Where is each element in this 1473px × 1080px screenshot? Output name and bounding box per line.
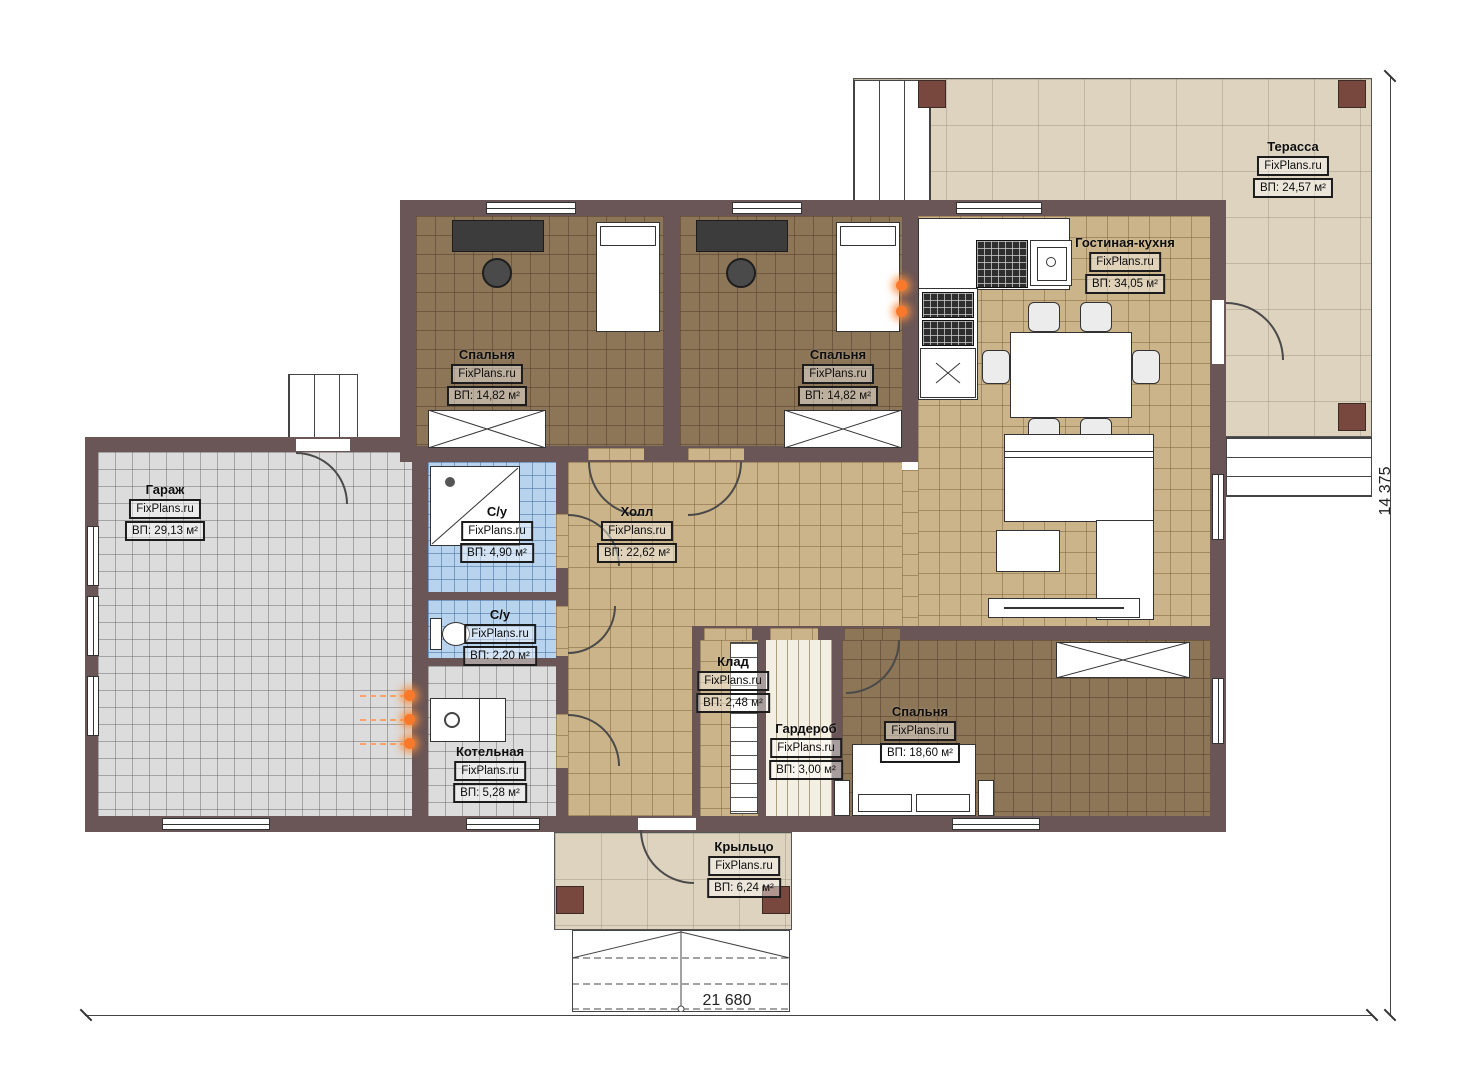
dining-chair [1028, 302, 1060, 332]
area-label: ВП: 22,62 м² [597, 543, 677, 563]
bedroom-2-door-opening [688, 448, 744, 460]
room-name: Спальня [892, 705, 948, 719]
utility-connection-icon [404, 714, 415, 725]
wall-bathroom-divider [424, 592, 556, 600]
brand-label: FixPlans.ru [697, 671, 769, 691]
terrace-side-steps [1226, 437, 1372, 497]
room-label-living-kitchen: Гостиная-кухня FixPlans.ru ВП: 34,05 м² [1075, 236, 1175, 294]
brand-label: FixPlans.ru [884, 721, 956, 741]
boiler-unit [430, 698, 506, 742]
room-name: С/у [490, 608, 510, 622]
porch-column [556, 886, 584, 914]
area-label: ВП: 14,82 м² [447, 386, 527, 406]
dimension-line-bottom [85, 1015, 1372, 1016]
room-label-bedroom-3: Спальня FixPlans.ru ВП: 18,60 м² [880, 705, 960, 763]
pillow [600, 226, 656, 246]
room-name: Клад [717, 655, 749, 669]
brand-label: FixPlans.ru [129, 499, 201, 519]
brand-label: FixPlans.ru [1257, 156, 1329, 176]
utility-connection-icon [896, 280, 907, 291]
brand-label: FixPlans.ru [708, 856, 780, 876]
porch-steps [572, 930, 790, 1012]
terrace-column [1338, 80, 1366, 108]
room-label-bathroom-2: С/у FixPlans.ru ВП: 2,20 м² [463, 608, 537, 666]
area-label: ВП: 3,00 м² [769, 760, 843, 780]
room-name: Гараж [146, 483, 185, 497]
sink-icon [1030, 240, 1072, 286]
wardrobe-door-opening [770, 628, 818, 640]
dining-table [1010, 332, 1132, 418]
garage-window-3 [87, 676, 99, 736]
room-name: Гостиная-кухня [1075, 236, 1175, 250]
room-label-garage: Гараж FixPlans.ru ВП: 29,13 м² [125, 483, 205, 541]
garage-wall-top [85, 437, 415, 452]
area-label: ВП: 34,05 м² [1085, 274, 1165, 294]
dimension-line-right [1390, 76, 1391, 1015]
wall-under-bedrooms [400, 446, 918, 462]
dining-chair [1132, 350, 1160, 384]
washer-crossed-cabinet [920, 348, 976, 398]
utility-line [360, 719, 406, 721]
wall-garage-services [412, 452, 428, 832]
porch-door-opening [638, 818, 696, 830]
area-label: ВП: 29,13 м² [125, 521, 205, 541]
bedroom-2-window [732, 202, 802, 214]
bedroom-1-window [486, 202, 576, 214]
room-label-bedroom-2: Спальня FixPlans.ru ВП: 14,82 м² [798, 348, 878, 406]
wall-bedroom-divider [664, 200, 680, 462]
garage-window-2 [87, 596, 99, 656]
bathroom-2-door-opening [556, 606, 568, 656]
stove-icon [976, 240, 1028, 288]
storage-door-opening [704, 628, 752, 640]
area-label: ВП: 2,20 м² [463, 646, 537, 666]
floor-plan-canvas: Терасса FixPlans.ru ВП: 24,57 м² Гостина… [0, 0, 1473, 1080]
brand-label: FixPlans.ru [601, 521, 673, 541]
bedroom-1-door-opening [588, 448, 644, 460]
terrace-door-opening [1212, 300, 1224, 364]
room-label-boiler: Котельная FixPlans.ru ВП: 5,28 м² [453, 745, 527, 803]
room-label-porch: Крыльцо FixPlans.ru ВП: 6,24 м² [707, 840, 781, 898]
bathroom-1-door-opening [556, 514, 568, 568]
room-label-hall: Холл FixPlans.ru ВП: 22,62 м² [597, 505, 677, 563]
boiler-door-opening [556, 714, 568, 768]
area-label: ВП: 4,90 м² [460, 543, 534, 563]
room-label-terrace: Терасса FixPlans.ru ВП: 24,57 м² [1253, 140, 1333, 198]
bedroom-3-window [952, 818, 1040, 830]
oven-icon [922, 292, 974, 318]
room-name: Котельная [456, 745, 524, 759]
room-name: Холл [621, 505, 654, 519]
area-label: ВП: 5,28 м² [453, 783, 527, 803]
room-name: Гардероб [775, 722, 836, 736]
brand-label: FixPlans.ru [454, 761, 526, 781]
dimension-height-label: 14 375 [1377, 451, 1395, 531]
desk [696, 220, 788, 252]
floor-plan-page: { "brand": "FixPlans.ru", "dimensions": … [0, 0, 1473, 1080]
room-name: Терасса [1267, 140, 1319, 154]
utility-line [360, 743, 406, 745]
area-label: ВП: 2,48 м² [696, 693, 770, 713]
area-label: ВП: 14,82 м² [798, 386, 878, 406]
garage-gate [162, 818, 270, 830]
hall-living-opening [902, 470, 918, 626]
room-label-wardrobe: Гардероб FixPlans.ru ВП: 3,00 м² [769, 722, 843, 780]
area-label: ВП: 18,60 м² [880, 743, 960, 763]
brand-label: FixPlans.ru [451, 364, 523, 384]
dining-chair [1080, 302, 1112, 332]
brand-label: FixPlans.ru [1089, 252, 1161, 272]
room-name: С/у [487, 505, 507, 519]
bedroom-3-door-opening [844, 628, 900, 640]
garage-door-opening [296, 439, 350, 451]
nightstand [834, 780, 850, 816]
room-name: Спальня [810, 348, 866, 362]
pillow [840, 226, 896, 246]
room-name: Крыльцо [714, 840, 773, 854]
coffee-table [996, 530, 1060, 572]
boiler-window [466, 818, 540, 830]
room-label-bathroom-1: С/у FixPlans.ru ВП: 4,90 м² [460, 505, 534, 563]
terrace-column [918, 80, 946, 108]
brand-label: FixPlans.ru [461, 521, 533, 541]
pillow [858, 794, 912, 812]
terrace-column [1338, 403, 1366, 431]
dining-chair [982, 350, 1010, 384]
room-label-storage: Клад FixPlans.ru ВП: 2,48 м² [696, 655, 770, 713]
garage-window-1 [87, 526, 99, 586]
kitchen-window [956, 202, 1042, 214]
nightstand [978, 780, 994, 816]
brand-label: FixPlans.ru [464, 624, 536, 644]
tv-stand [988, 598, 1140, 618]
area-label: ВП: 24,57 м² [1253, 178, 1333, 198]
brand-label: FixPlans.ru [770, 738, 842, 758]
dishwasher-icon [922, 320, 974, 346]
boiler-dial-icon [444, 712, 460, 728]
wardrobe-cabinet-crossed [428, 410, 546, 448]
utility-connection-icon [404, 690, 415, 701]
utility-connection-icon [404, 738, 415, 749]
sofa [1004, 434, 1154, 522]
bedroom-3-side-window [1212, 678, 1224, 744]
wall-left-upper [400, 200, 416, 462]
room-label-bedroom-1: Спальня FixPlans.ru ВП: 14,82 м² [447, 348, 527, 406]
toilet-icon [430, 618, 442, 650]
desk-chair [482, 258, 512, 288]
pillow [916, 794, 970, 812]
utility-connection-icon [896, 306, 907, 317]
utility-line [360, 695, 406, 697]
area-label: ВП: 6,24 м² [707, 878, 781, 898]
room-name: Спальня [459, 348, 515, 362]
wall-kitchen-left [902, 200, 918, 462]
wardrobe-cabinet-crossed [784, 410, 902, 448]
built-in-closet-crossed [1056, 642, 1190, 678]
desk-chair [726, 258, 756, 288]
living-window [1212, 474, 1224, 540]
brand-label: FixPlans.ru [802, 364, 874, 384]
desk [452, 220, 544, 252]
dimension-width-label: 21 680 [703, 992, 752, 1010]
